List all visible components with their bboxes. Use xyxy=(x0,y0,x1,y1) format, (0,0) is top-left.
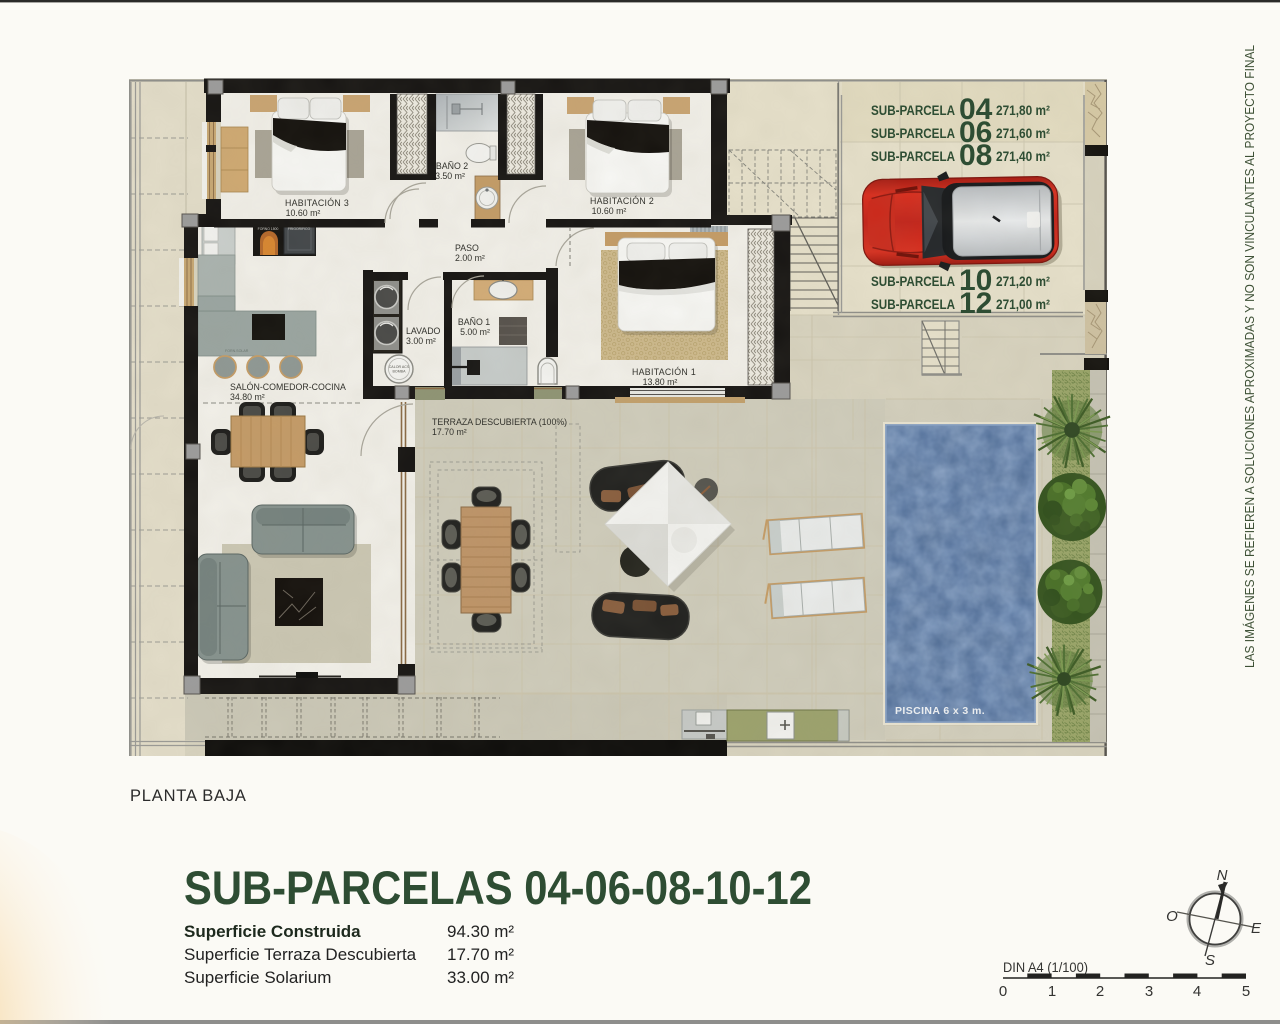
svg-text:4: 4 xyxy=(1193,983,1201,1000)
svg-text:271,00 m²: 271,00 m² xyxy=(996,297,1050,312)
svg-text:271,20 m²: 271,20 m² xyxy=(996,274,1050,289)
svg-text:271,60 m²: 271,60 m² xyxy=(996,126,1050,141)
svg-text:08: 08 xyxy=(959,139,992,172)
svg-text:SUB-PARCELA: SUB-PARCELA xyxy=(871,297,955,312)
svg-text:E: E xyxy=(1251,920,1262,937)
svg-text:SUB-PARCELAS 04-06-08-10-12: SUB-PARCELAS 04-06-08-10-12 xyxy=(184,861,812,914)
svg-text:Superficie Construida: Superficie Construida xyxy=(184,922,361,941)
svg-text:S: S xyxy=(1205,952,1215,969)
svg-text:PLANTA BAJA: PLANTA BAJA xyxy=(130,787,247,805)
svg-text:DIN A4 (1/100): DIN A4 (1/100) xyxy=(1003,959,1088,975)
svg-text:2: 2 xyxy=(1096,983,1104,1000)
svg-text:17.70 m²: 17.70 m² xyxy=(447,945,514,964)
svg-text:5: 5 xyxy=(1242,983,1250,1000)
svg-text:SUB-PARCELA: SUB-PARCELA xyxy=(871,126,955,141)
svg-text:271,40 m²: 271,40 m² xyxy=(996,149,1050,164)
svg-text:LAS IMÁGENES SE REFIEREN A SOL: LAS IMÁGENES SE REFIEREN A SOLUCIONES AP… xyxy=(1242,45,1257,668)
svg-text:Superficie Terraza Descubierta: Superficie Terraza Descubierta xyxy=(184,945,417,964)
svg-text:SUB-PARCELA: SUB-PARCELA xyxy=(871,274,955,289)
svg-text:N: N xyxy=(1217,867,1228,884)
svg-text:94.30 m²: 94.30 m² xyxy=(447,922,514,941)
svg-text:3: 3 xyxy=(1145,983,1153,1000)
svg-text:SUB-PARCELA: SUB-PARCELA xyxy=(871,149,955,164)
svg-text:271,80 m²: 271,80 m² xyxy=(996,103,1050,118)
svg-text:1: 1 xyxy=(1048,983,1056,1000)
svg-text:33.00 m²: 33.00 m² xyxy=(447,968,514,987)
svg-text:12: 12 xyxy=(959,287,992,320)
svg-text:O: O xyxy=(1166,908,1178,925)
svg-text:Superficie Solarium: Superficie Solarium xyxy=(184,968,331,987)
svg-text:SUB-PARCELA: SUB-PARCELA xyxy=(871,103,955,118)
svg-text:0: 0 xyxy=(999,983,1007,1000)
